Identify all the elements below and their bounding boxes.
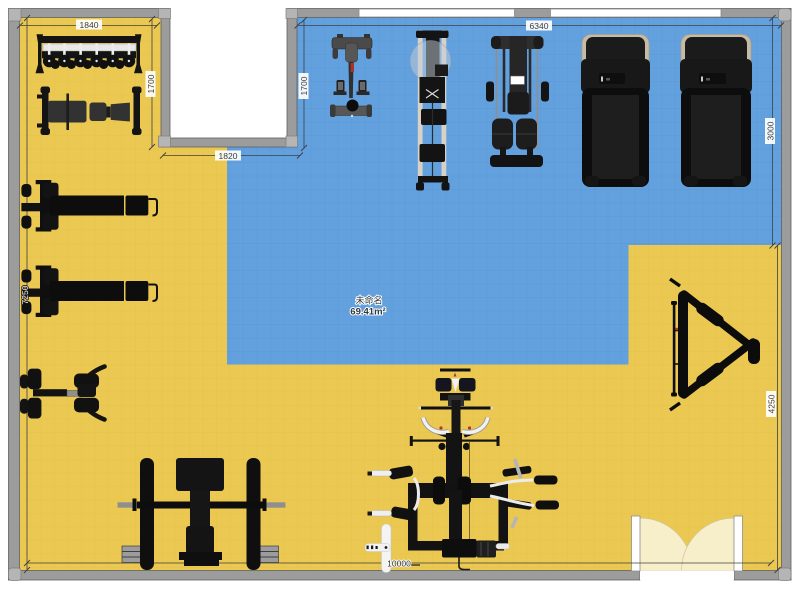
- svg-text:3000: 3000: [766, 121, 776, 140]
- svg-text:1840: 1840: [80, 20, 99, 30]
- svg-text:1700: 1700: [299, 76, 309, 95]
- svg-text:4250: 4250: [767, 394, 777, 413]
- svg-text:1700: 1700: [146, 74, 156, 93]
- svg-text:未命名: 未命名: [355, 295, 382, 306]
- svg-text:7250: 7250: [20, 285, 30, 304]
- svg-text:10000: 10000: [387, 559, 411, 569]
- svg-text:69.41m²: 69.41m²: [350, 307, 385, 318]
- svg-text:6340: 6340: [530, 21, 549, 31]
- svg-text:1820: 1820: [219, 151, 238, 161]
